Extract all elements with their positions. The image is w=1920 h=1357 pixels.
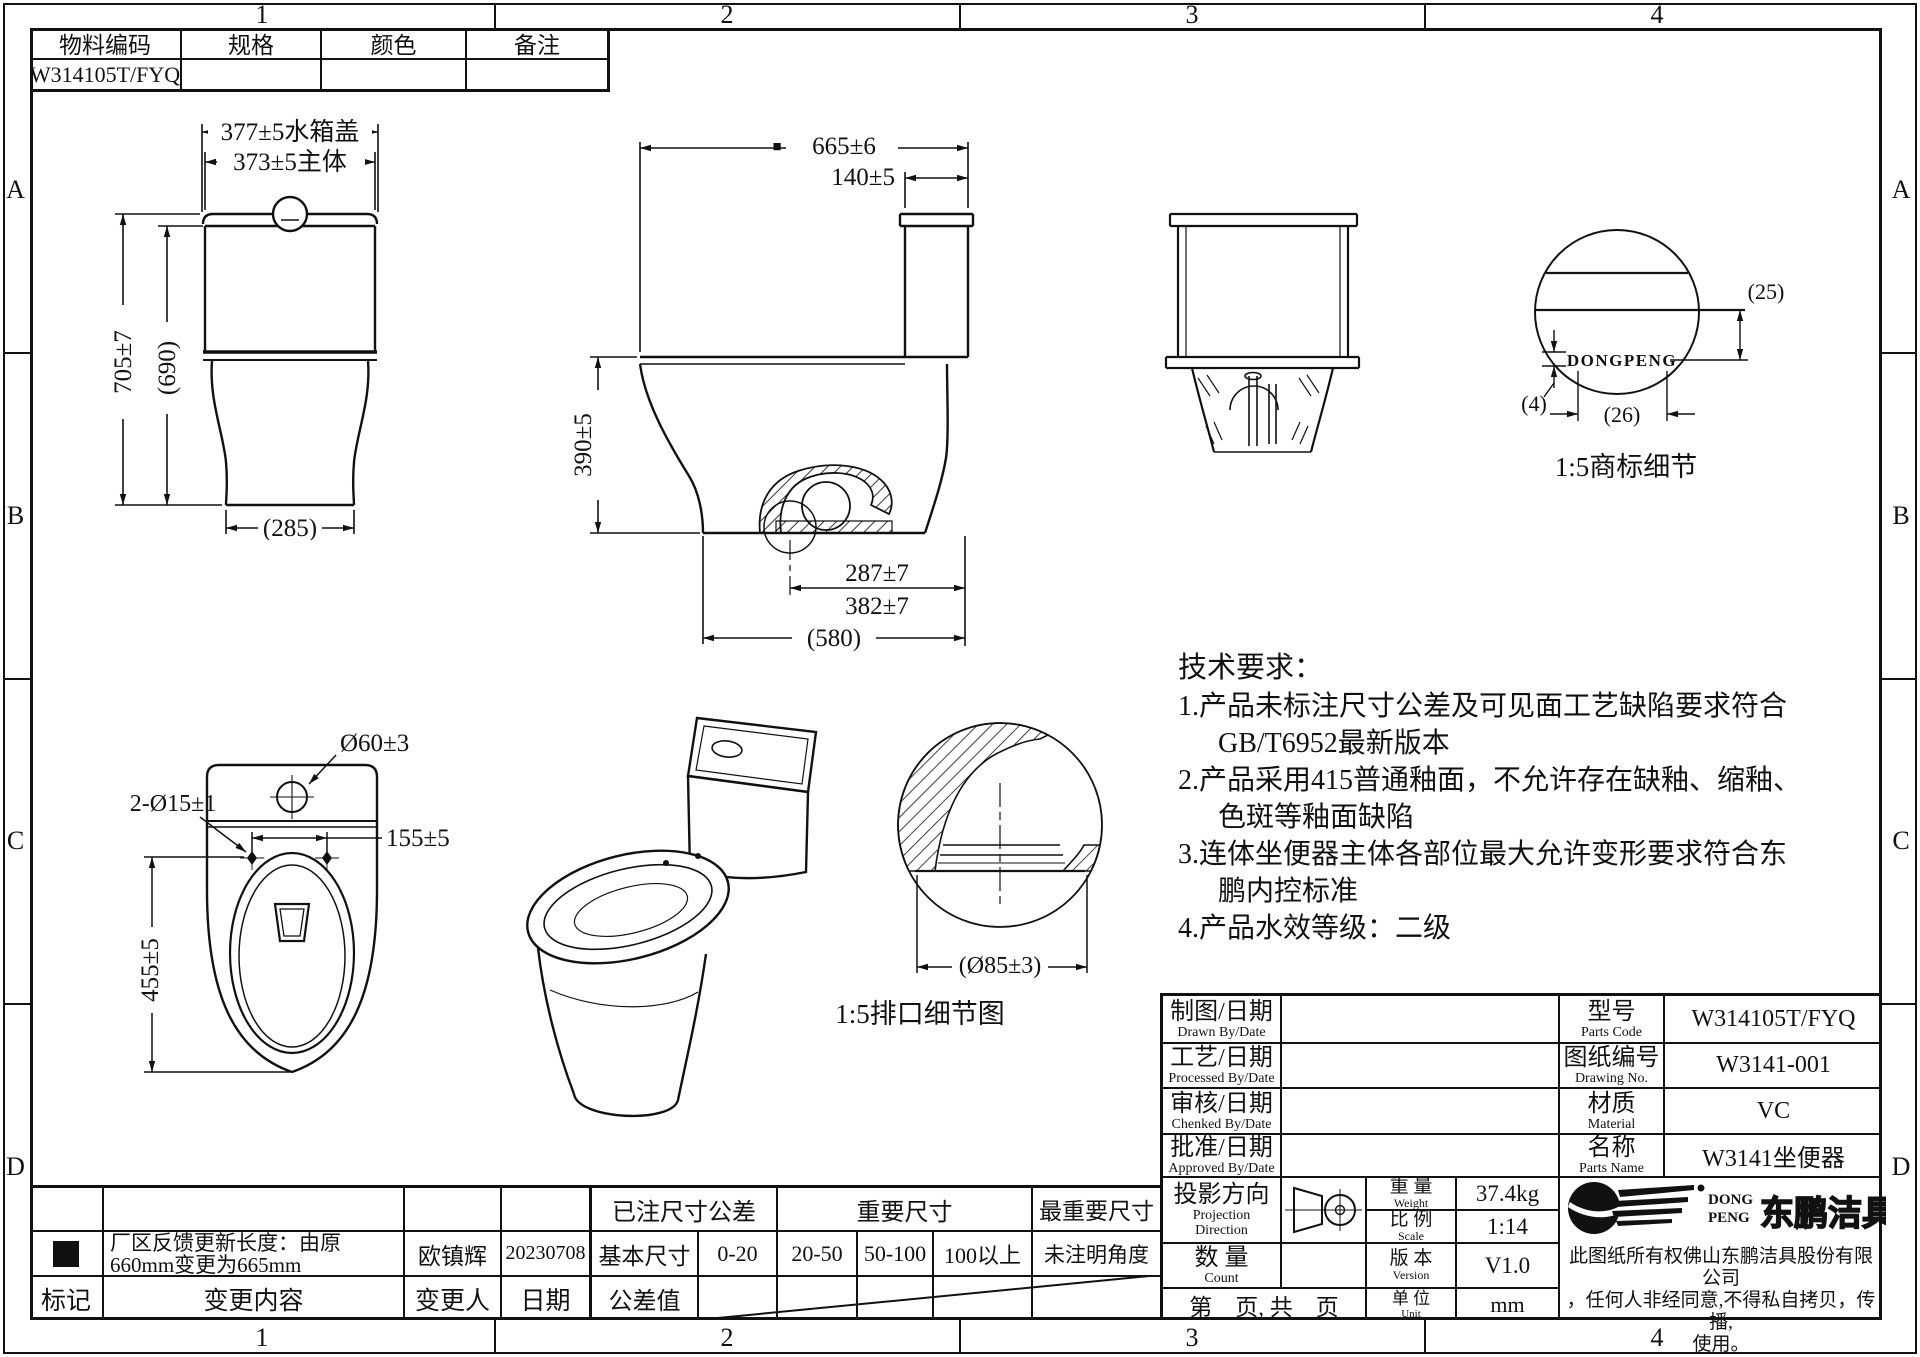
dim-label: 155±5 (386, 825, 450, 852)
dim-label: 373±5主体 (233, 148, 347, 176)
tolerance-header-noted: 已注尺寸公差 (592, 1188, 776, 1230)
engineering-drawing-sheet: { "zones": { "top": ["1","2","3","4"], "… (0, 0, 1920, 1357)
tolerance-basic-size-label: 基本尺寸 (592, 1232, 697, 1275)
trademark-detail-drawing: DONGPENG (25) (4) (26) 1:5商标细节 (1500, 215, 1810, 485)
dim-label: 287±7 (845, 560, 909, 587)
top-view-drawing: Ø60±3 2-Ø15±1 155±5 455±5 (120, 720, 460, 1150)
tolerance-range: 20-50 (778, 1232, 856, 1275)
revision-header-date: 日期 (502, 1277, 589, 1320)
dim-label: 2-Ø15±1 (130, 791, 217, 817)
zone-label-left-c: C (2, 828, 29, 854)
model-label: 型号 Parts Code (1560, 996, 1663, 1042)
dongpeng-logo-text: DONGPENG (1567, 351, 1677, 370)
title-block: 制图/日期 Drawn By/Date 型号 Parts Code W31410… (1160, 993, 1882, 1320)
model-value: W314105T/FYQ (1665, 996, 1882, 1042)
unit-value: mm (1457, 1289, 1558, 1320)
zone-tick (494, 1320, 496, 1352)
projection-symbol (1282, 1178, 1365, 1242)
dim-label: 140±5 (831, 164, 895, 191)
tolerance-diagonal-line (697, 1275, 1160, 1320)
info-header-material-code: 物料编码 (30, 28, 180, 58)
revision-header-content: 变更内容 (104, 1277, 403, 1320)
zone-label-bottom-2: 2 (712, 1325, 742, 1351)
dim-label: 455±5 (137, 938, 164, 1002)
version-label: 版 本 Version (1367, 1244, 1455, 1287)
brand-area: DONG PENG 东鹏洁具 此图纸所有权佛山东鹏洁具股份有限公司 ，任何人非经… (1560, 1178, 1882, 1320)
dim-label: 390±5 (570, 413, 597, 477)
revision-mark-square (53, 1241, 79, 1267)
version-value: V1.0 (1457, 1244, 1558, 1287)
material-label: 材质 Material (1560, 1089, 1663, 1133)
processed-by-label: 工艺/日期 Processed By/Date (1163, 1044, 1280, 1087)
revision-header-person: 变更人 (405, 1277, 500, 1320)
zone-tick (959, 1320, 961, 1352)
zone-label-right-a: A (1886, 177, 1916, 203)
zone-tick (3, 1003, 30, 1005)
tech-requirement-line: 鹏内控标准 (1178, 873, 1890, 910)
scale-value: 1:14 (1457, 1211, 1558, 1242)
drawing-no-label: 图纸编号 Drawing No. (1560, 1044, 1663, 1087)
back-view-drawing (1150, 200, 1370, 460)
checked-by-label: 审核/日期 Chenked By/Date (1163, 1089, 1280, 1133)
projection-direction-label: 投影方向 Projection Direction (1163, 1178, 1280, 1242)
third-angle-projection-icon (1282, 1180, 1365, 1240)
zone-tick (3, 678, 30, 680)
zone-label-top-1: 1 (247, 2, 277, 28)
zone-tick (959, 5, 961, 28)
brand-cn: 东鹏洁具 (1760, 1194, 1886, 1233)
tech-requirement-line: 色斑等釉面缺陷 (1178, 799, 1890, 836)
count-value (1282, 1244, 1365, 1287)
dim-label: (580) (807, 625, 861, 652)
dim-label: (26) (1604, 402, 1641, 427)
dim-label: 382±7 (845, 593, 909, 620)
most-important-dim-marker: ■ (772, 139, 781, 155)
approved-by-label: 批准/日期 Approved By/Date (1163, 1135, 1280, 1176)
zone-label-bottom-1: 1 (247, 1325, 277, 1351)
tech-requirement-line: GB/T6952最新版本 (1178, 725, 1890, 762)
tech-requirement-line: 3.连体坐便器主体各部位最大允许变形要求符合东 (1178, 836, 1890, 873)
tolerance-range: 0-20 (699, 1232, 776, 1275)
tolerance-table: 已注尺寸公差 重要尺寸 最重要尺寸 基本尺寸 0-20 20-50 50-100… (592, 1185, 1160, 1320)
zone-label-right-c: C (1886, 828, 1916, 854)
revision-header-mark: 标记 (30, 1277, 102, 1320)
trademark-detail-caption: 1:5商标细节 (1555, 452, 1698, 482)
dim-label: (690) (154, 341, 181, 395)
count-label: 数 量 Count (1163, 1244, 1280, 1287)
zone-label-left-d: D (2, 1154, 29, 1180)
zone-tick (1882, 352, 1917, 354)
brand-en-line1: DONG (1708, 1192, 1753, 1208)
zone-label-left-a: A (2, 177, 29, 203)
revision-person: 欧镇辉 (405, 1232, 500, 1275)
dim-label: 705±7 (110, 330, 137, 394)
zone-tick (3, 352, 30, 354)
zone-label-right-b: B (1886, 503, 1916, 529)
parts-name-value: W3141坐便器 (1665, 1135, 1882, 1176)
tolerance-range: 50-100 (858, 1232, 932, 1275)
revision-date: 20230708 (502, 1232, 589, 1275)
zone-label-top-4: 4 (1642, 2, 1672, 28)
drawing-no-value: W3141-001 (1665, 1044, 1882, 1087)
zone-label-right-d: D (1886, 1154, 1916, 1180)
dim-label: (4) (1521, 391, 1547, 416)
zone-tick (1424, 5, 1426, 28)
tech-requirement-line: 1.产品未标注尺寸公差及可见面工艺缺陷要求符合 (1178, 688, 1890, 725)
outlet-detail-caption: 1:5排口细节图 (835, 999, 1005, 1029)
revision-content: 厂区反馈更新长度：由原 660mm变更为665mm (110, 1232, 403, 1275)
zone-tick (494, 5, 496, 28)
side-view-drawing: ■ 665±6 140±5 390±5 287±7 382±7 (580) (440, 90, 1100, 670)
weight-value: 37.4kg (1457, 1178, 1558, 1209)
scale-label: 比 例 Scale (1367, 1211, 1455, 1242)
info-value-material-code: W314105T/FYQ (30, 60, 180, 89)
tolerance-header-important: 重要尺寸 (778, 1188, 1031, 1230)
outlet-detail-drawing: (Ø85±3) 1:5排口细节图 (700, 705, 1120, 1035)
brand-en-line2: PENG (1708, 1210, 1750, 1226)
revision-mark (30, 1232, 102, 1275)
weight-label: 重 量 Weight (1367, 1178, 1455, 1209)
technical-requirements: 技术要求： 1.产品未标注尺寸公差及可见面工艺缺陷要求符合 GB/T6952最新… (1178, 648, 1890, 947)
dim-label: (285) (263, 515, 317, 540)
tolerance-value-label: 公差值 (592, 1277, 697, 1320)
unit-label: 单 位 Unit (1367, 1289, 1455, 1320)
zone-label-bottom-3: 3 (1177, 1325, 1207, 1351)
zone-tick (1882, 1003, 1917, 1005)
zone-label-left-b: B (2, 503, 29, 529)
tech-requirements-title: 技术要求： (1178, 648, 1890, 688)
zone-tick (1424, 1320, 1426, 1352)
revision-table: 厂区反馈更新长度：由原 660mm变更为665mm 欧镇辉 20230708 标… (30, 1185, 592, 1320)
tolerance-header-most-important: 最重要尺寸 (1033, 1188, 1160, 1230)
dim-label: 377±5水箱盖 (221, 118, 360, 146)
tolerance-range: 100以上 (934, 1232, 1031, 1275)
info-header-remark: 备注 (467, 28, 607, 58)
dim-label: Ø60±3 (340, 730, 409, 757)
dim-label: (Ø85±3) (959, 953, 1042, 979)
dim-label: (25) (1748, 279, 1785, 304)
copyright-disclaimer: 此图纸所有权佛山东鹏洁具股份有限公司 ，任何人非经同意,不得私自拷贝，传播, 使… (1560, 1246, 1882, 1356)
info-header-spec: 规格 (182, 28, 320, 58)
tech-requirement-line: 4.产品水效等级：二级 (1178, 910, 1890, 947)
tech-requirement-line: 2.产品采用415普通釉面，不允许存在缺釉、缩釉、 (1178, 762, 1890, 799)
info-header-color: 颜色 (322, 28, 465, 58)
page-numbers: 第 页, 共 页 (1163, 1289, 1365, 1320)
zone-label-top-3: 3 (1177, 2, 1207, 28)
tolerance-range: 未注明角度 (1033, 1232, 1160, 1275)
parts-name-label: 名称 Parts Name (1560, 1135, 1663, 1176)
drawn-by-label: 制图/日期 Drawn By/Date (1163, 996, 1280, 1042)
material-info-table: 物料编码 规格 颜色 备注 W314105T/FYQ (30, 28, 610, 92)
material-value: VC (1665, 1089, 1882, 1133)
dongpeng-logo: DONG PENG 东鹏洁具 (1564, 1180, 1886, 1244)
front-view-drawing: 377±5水箱盖 373±5主体 705±7 (690) (285) (60, 100, 480, 540)
zone-label-top-2: 2 (712, 2, 742, 28)
dim-label: 665±6 (812, 133, 876, 160)
